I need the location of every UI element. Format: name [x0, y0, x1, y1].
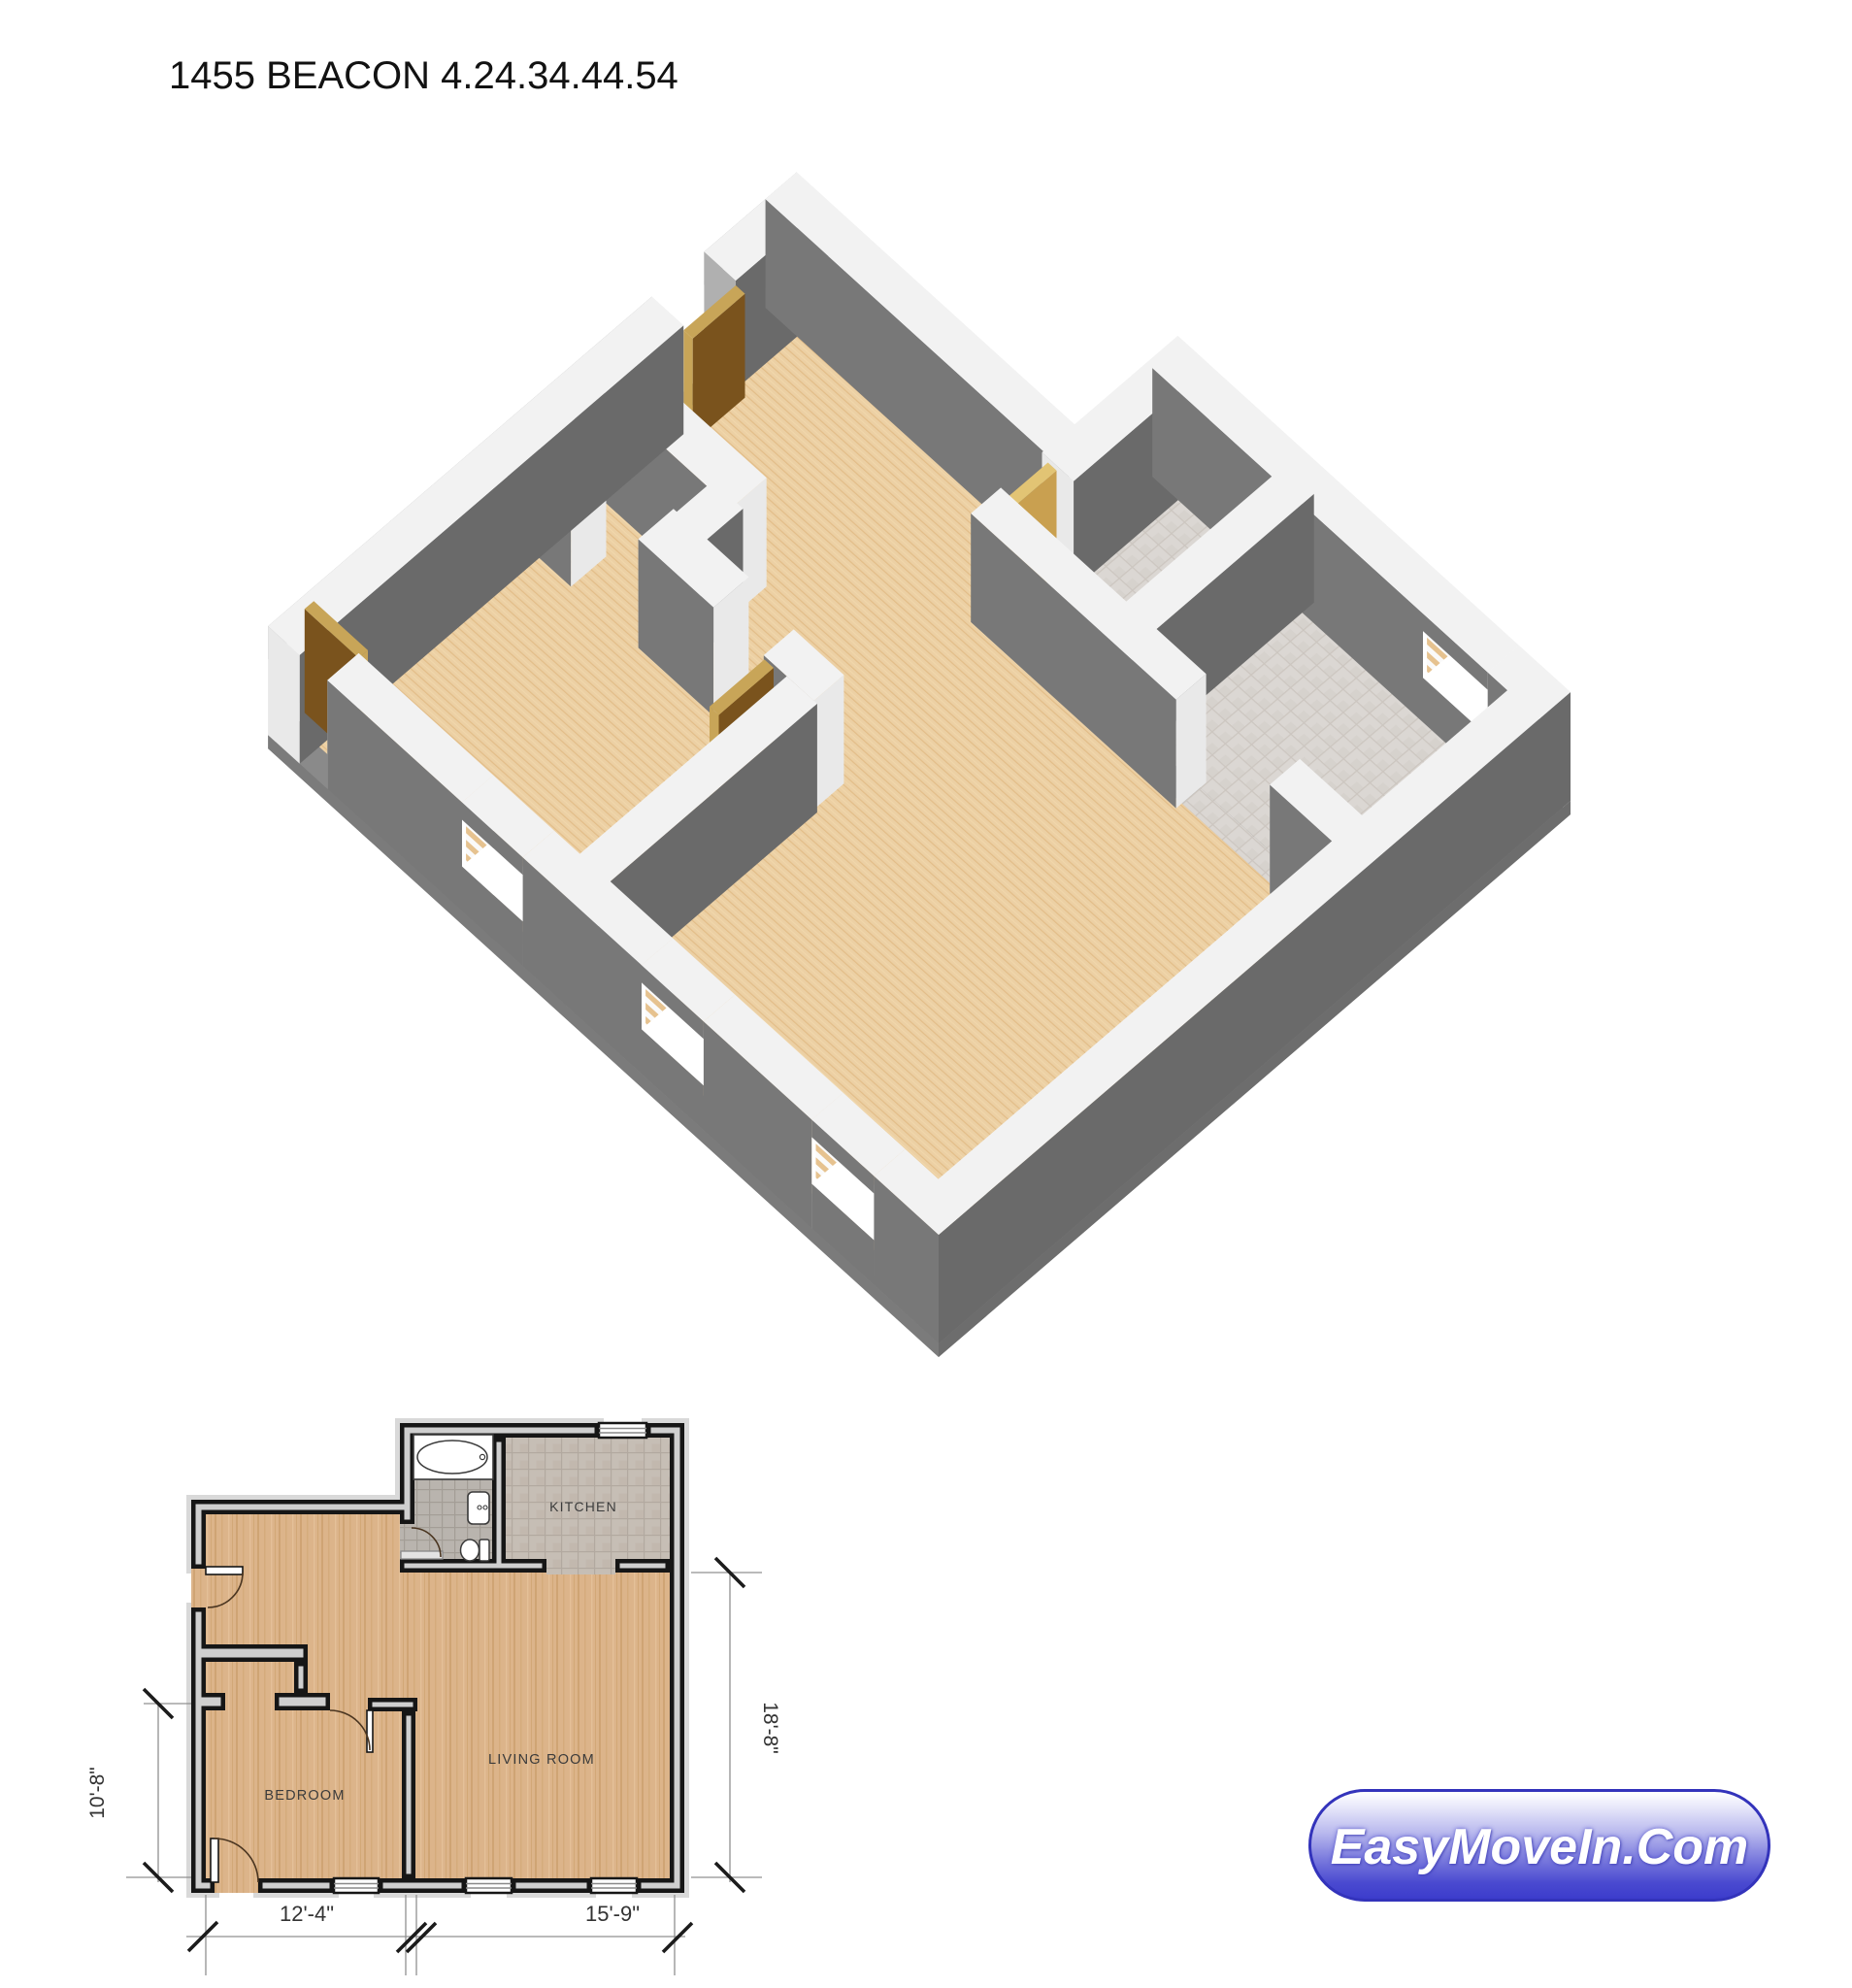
svg-text:KITCHEN: KITCHEN — [549, 1499, 617, 1514]
svg-text:LIVING ROOM: LIVING ROOM — [488, 1752, 595, 1768]
svg-text:BEDROOM: BEDROOM — [264, 1788, 345, 1804]
svg-text:15'-9": 15'-9" — [585, 1902, 640, 1926]
svg-text:12'-4": 12'-4" — [280, 1902, 334, 1926]
svg-text:10'-8": 10'-8" — [86, 1767, 109, 1819]
svg-text:18'-8": 18'-8" — [759, 1702, 781, 1754]
